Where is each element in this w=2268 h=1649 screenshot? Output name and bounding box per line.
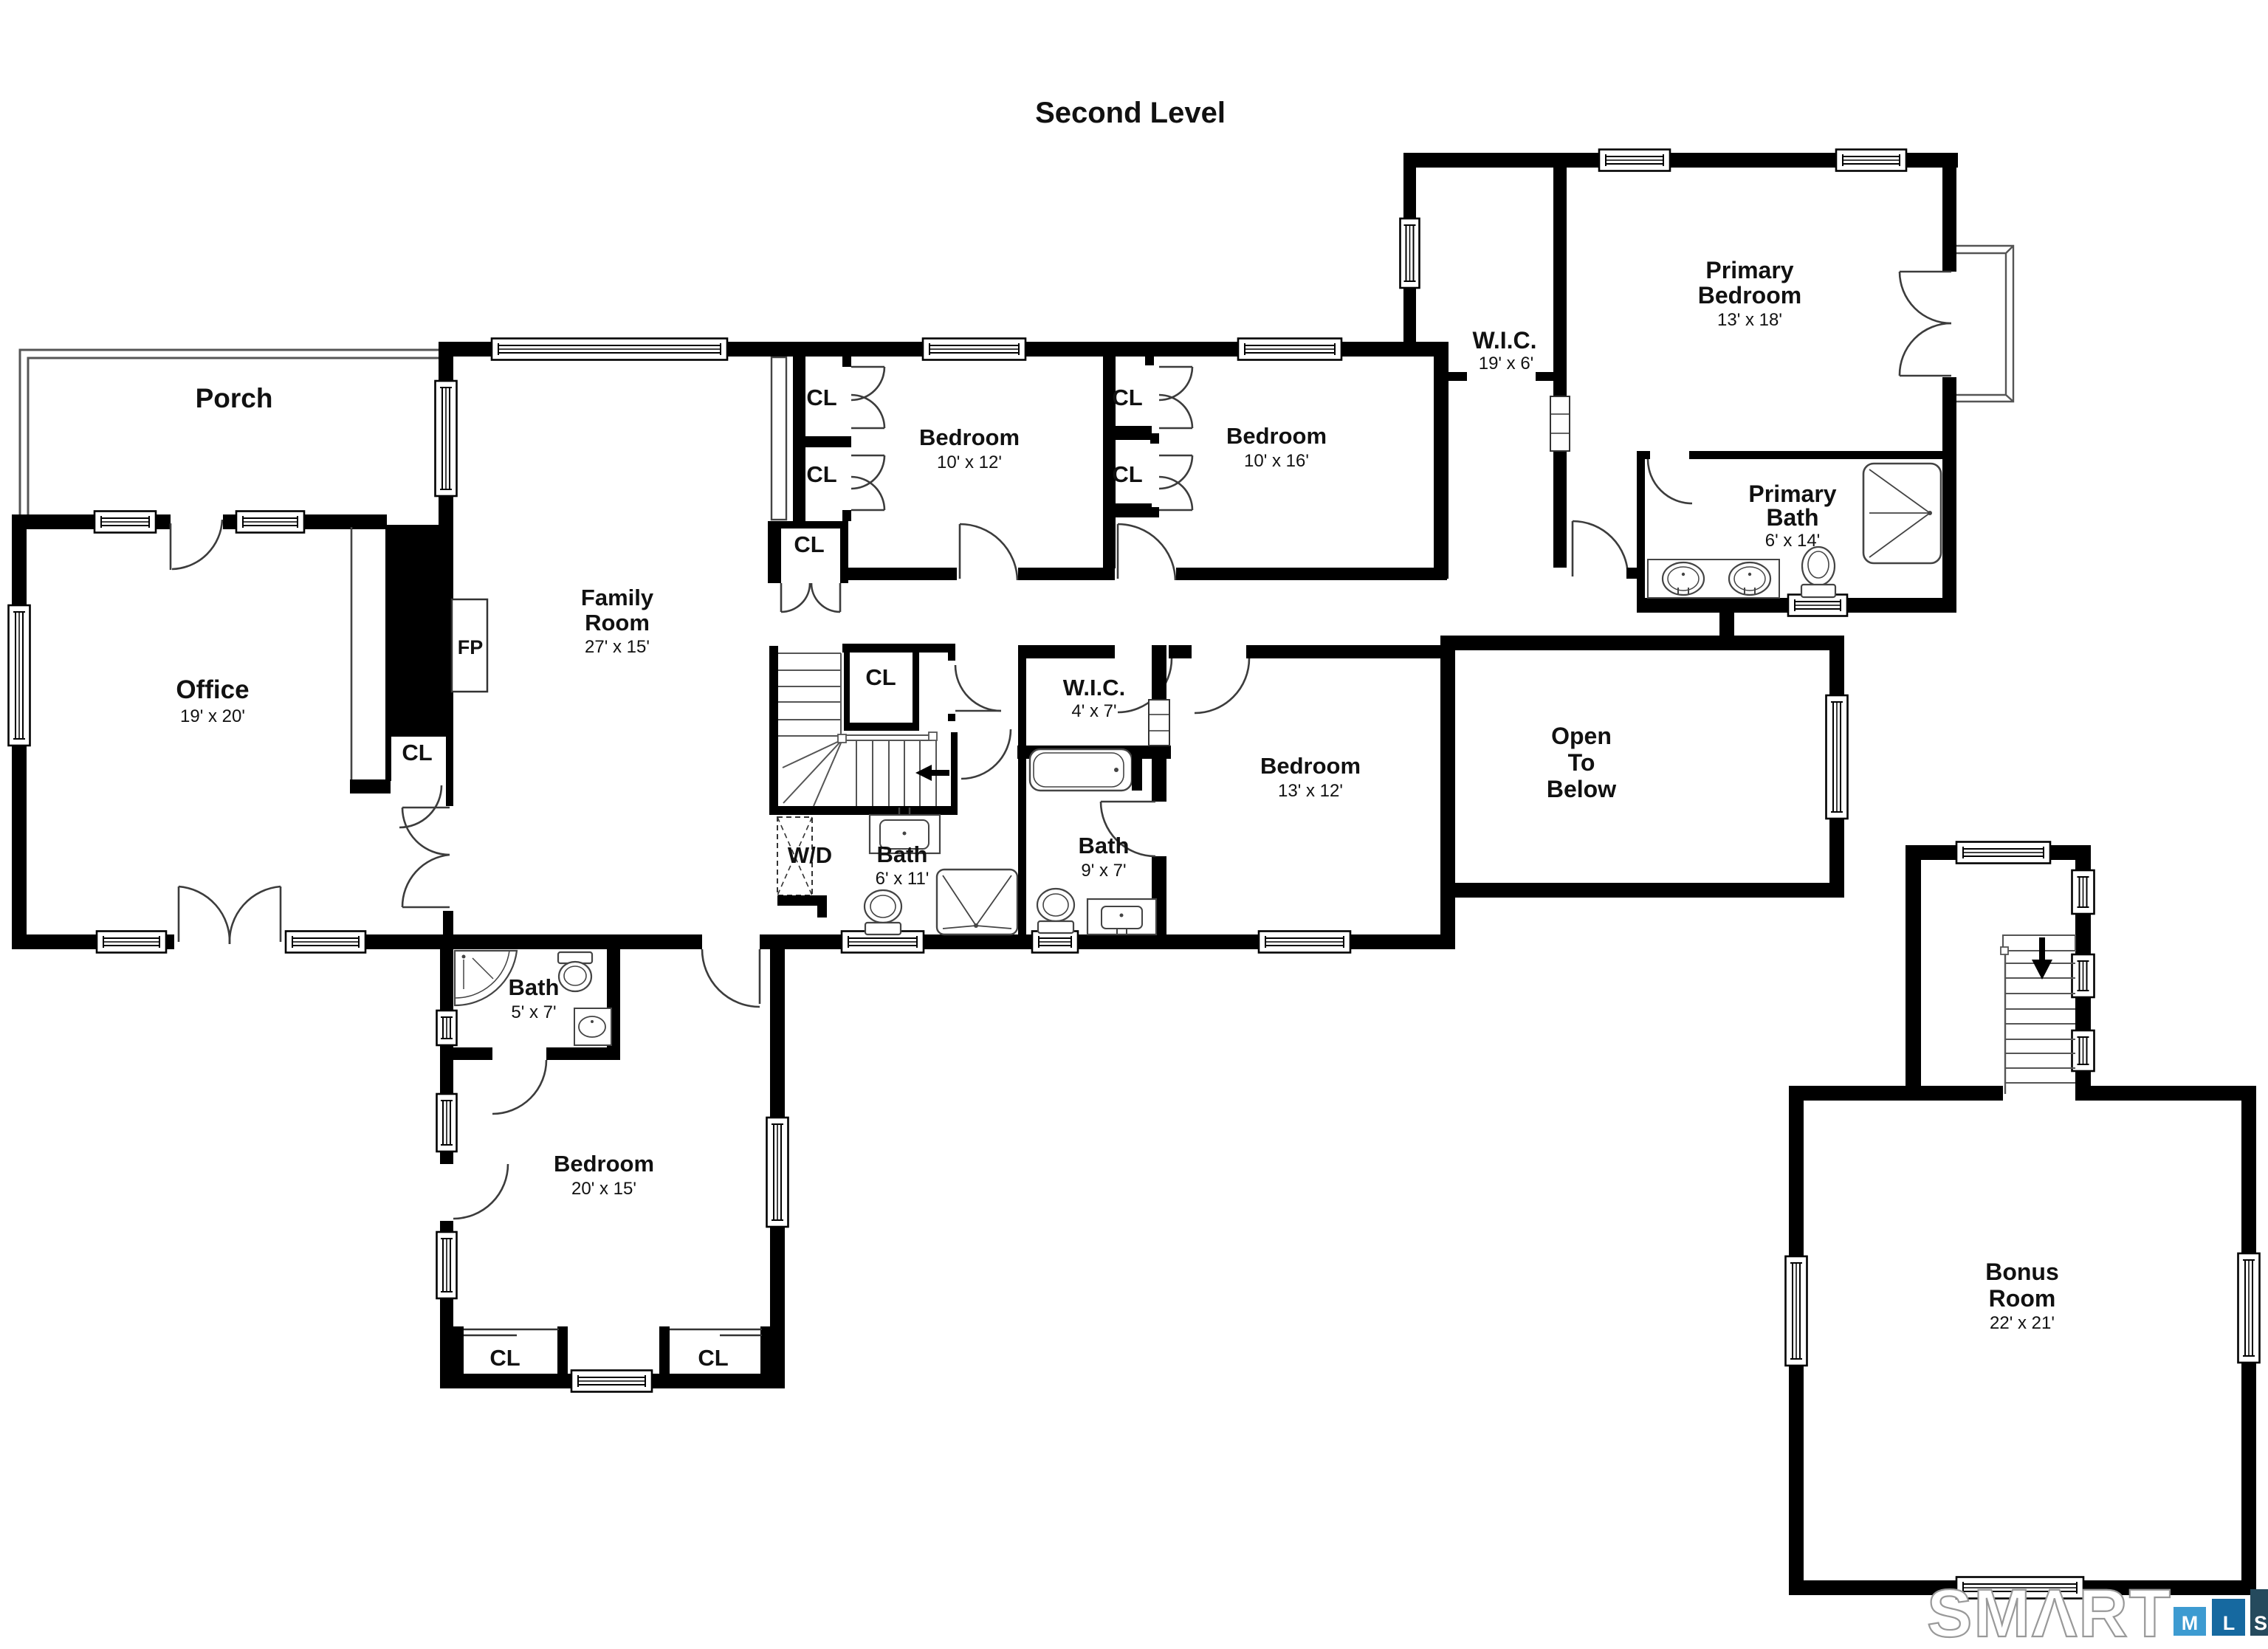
svg-text:W.I.C.: W.I.C. [1063, 675, 1125, 700]
svg-text:W.I.C.: W.I.C. [1472, 327, 1536, 354]
svg-text:13' x 18': 13' x 18' [1717, 310, 1782, 330]
svg-text:CL: CL [402, 740, 432, 765]
svg-text:Porch: Porch [196, 383, 273, 413]
svg-text:Bonus: Bonus [1985, 1259, 2059, 1285]
svg-text:6' x 11': 6' x 11' [876, 869, 929, 889]
svg-text:CL: CL [794, 531, 824, 557]
svg-text:SMΛRT: SMΛRT [1927, 1576, 2172, 1649]
svg-text:Bath: Bath [1766, 504, 1818, 531]
svg-text:20' x 15': 20' x 15' [571, 1179, 636, 1199]
svg-text:CL: CL [865, 664, 896, 690]
svg-text:Room: Room [1989, 1285, 2056, 1312]
svg-text:L: L [2223, 1612, 2236, 1634]
svg-text:10' x 16': 10' x 16' [1244, 451, 1309, 471]
svg-text:Office: Office [176, 675, 249, 704]
svg-text:Bath: Bath [1079, 833, 1130, 858]
svg-text:To: To [1568, 749, 1595, 776]
svg-text:19' x 20': 19' x 20' [180, 706, 245, 726]
svg-text:Open: Open [1551, 723, 1612, 749]
svg-text:10' x 12': 10' x 12' [937, 452, 1002, 472]
svg-text:Room: Room [585, 610, 650, 636]
svg-text:13' x 12': 13' x 12' [1278, 781, 1343, 801]
svg-text:M: M [2182, 1612, 2199, 1634]
svg-text:4' x 7': 4' x 7' [1071, 701, 1116, 721]
svg-text:CL: CL [1112, 385, 1142, 410]
svg-text:CL: CL [698, 1345, 728, 1371]
svg-text:Bedroom: Bedroom [1226, 423, 1327, 449]
svg-text:22' x 21': 22' x 21' [1990, 1313, 2055, 1333]
svg-text:CL: CL [806, 461, 836, 487]
svg-text:Bath: Bath [509, 974, 560, 1000]
svg-text:CL: CL [1112, 461, 1142, 487]
svg-text:Family: Family [581, 585, 654, 610]
svg-text:Second Level: Second Level [1035, 97, 1226, 129]
svg-text:27' x 15': 27' x 15' [585, 637, 650, 657]
svg-text:FP: FP [458, 636, 484, 658]
svg-text:9' x 7': 9' x 7' [1081, 861, 1126, 881]
svg-text:S: S [2254, 1612, 2267, 1634]
svg-text:Bedroom: Bedroom [554, 1151, 654, 1177]
svg-text:CL: CL [489, 1345, 520, 1371]
svg-text:W/D: W/D [788, 842, 832, 868]
svg-text:Bedroom: Bedroom [1260, 753, 1361, 779]
svg-text:19' x 6': 19' x 6' [1479, 354, 1534, 373]
svg-text:Primary: Primary [1748, 481, 1836, 507]
svg-text:CL: CL [806, 385, 836, 410]
svg-text:Bath: Bath [877, 841, 928, 867]
svg-text:Bedroom: Bedroom [1698, 282, 1801, 309]
svg-text:Primary: Primary [1705, 257, 1793, 283]
svg-text:Below: Below [1547, 776, 1616, 802]
svg-text:Bedroom: Bedroom [919, 424, 1020, 450]
svg-text:5' x 7': 5' x 7' [511, 1002, 556, 1022]
